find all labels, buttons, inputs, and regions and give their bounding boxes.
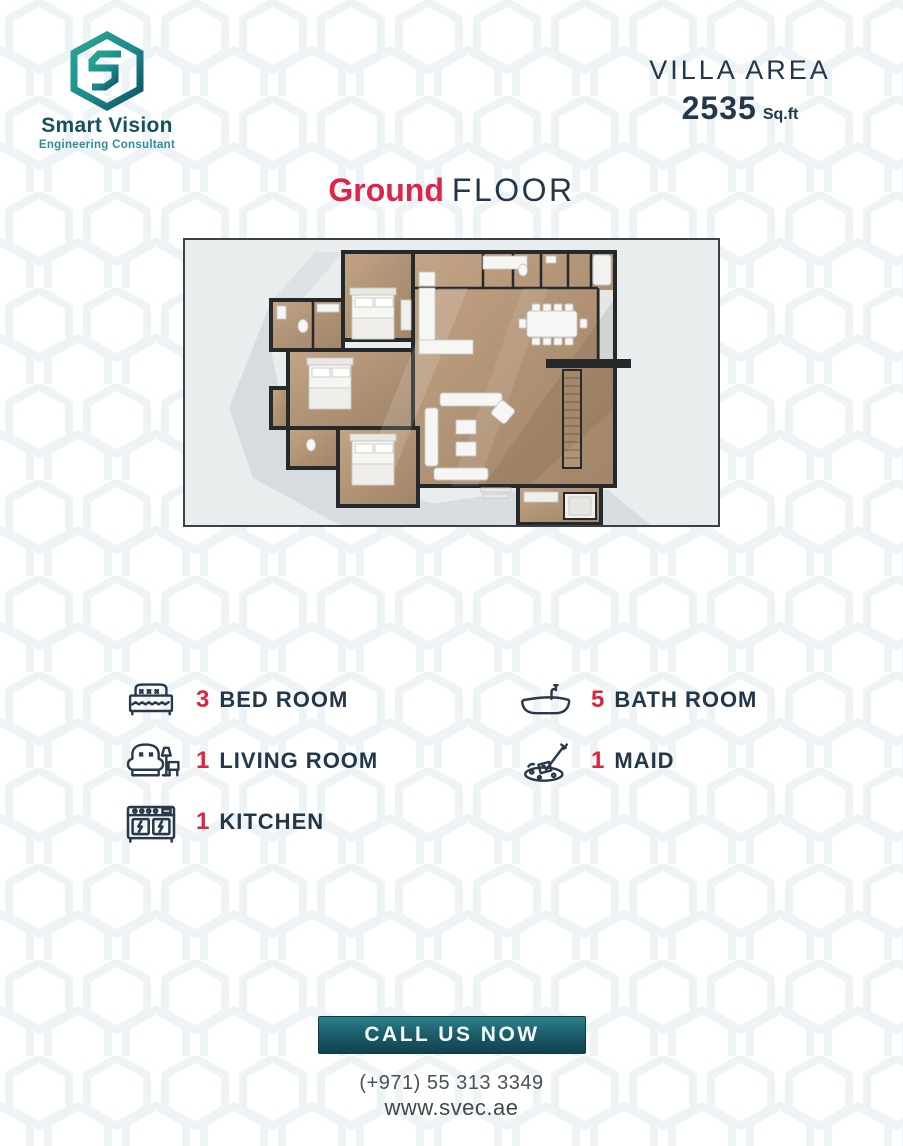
bedrooms-label: BED ROOM xyxy=(219,687,348,712)
living-room-count: 1 xyxy=(196,747,210,774)
villa-area-block: VILLA AREA 2535Sq.ft xyxy=(600,55,880,127)
feature-kitchen: 1KITCHEN xyxy=(120,796,324,848)
brand-logo: Smart Vision Engineering Consultant xyxy=(22,30,192,151)
page-title: GroundFLOOR xyxy=(0,172,903,209)
phone-number: (+971) 55 313 3349 xyxy=(0,1072,903,1095)
villa-area-value: 2535 xyxy=(682,90,757,126)
brand-name: Smart Vision xyxy=(22,114,192,138)
villa-area-label: VILLA AREA xyxy=(600,55,880,86)
stove-icon xyxy=(120,798,182,846)
feature-bathrooms: 5BATH ROOM xyxy=(515,674,757,726)
kitchen-count: 1 xyxy=(196,808,210,835)
page-title-highlight: Ground xyxy=(328,172,444,208)
flyer-page: Smart Vision Engineering Consultant VILL… xyxy=(0,0,903,1146)
maid-label: MAID xyxy=(614,748,674,773)
cleaning-icon xyxy=(515,737,577,785)
brand-tagline: Engineering Consultant xyxy=(22,139,192,151)
website-link[interactable]: www.svec.ae xyxy=(0,1095,903,1121)
page-title-rest: FLOOR xyxy=(452,172,575,208)
feature-bedrooms: 3BED ROOM xyxy=(120,674,348,726)
bathrooms-label: BATH ROOM xyxy=(614,687,757,712)
bathtub-icon xyxy=(515,676,577,724)
bedrooms-count: 3 xyxy=(196,686,210,713)
floor-plan-image xyxy=(183,238,720,527)
bed-icon xyxy=(120,676,182,724)
maid-count: 1 xyxy=(591,747,605,774)
living-room-label: LIVING ROOM xyxy=(219,748,378,773)
villa-area-unit: Sq.ft xyxy=(763,106,799,123)
kitchen-label: KITCHEN xyxy=(219,809,324,834)
call-us-now-button[interactable]: CALL US NOW xyxy=(318,1016,586,1054)
feature-living-room: 1LIVING ROOM xyxy=(120,735,378,787)
bathrooms-count: 5 xyxy=(591,686,605,713)
feature-maid: 1MAID xyxy=(515,735,675,787)
armchair-icon xyxy=(120,737,182,785)
hexagon-s-logo-icon xyxy=(65,30,149,112)
